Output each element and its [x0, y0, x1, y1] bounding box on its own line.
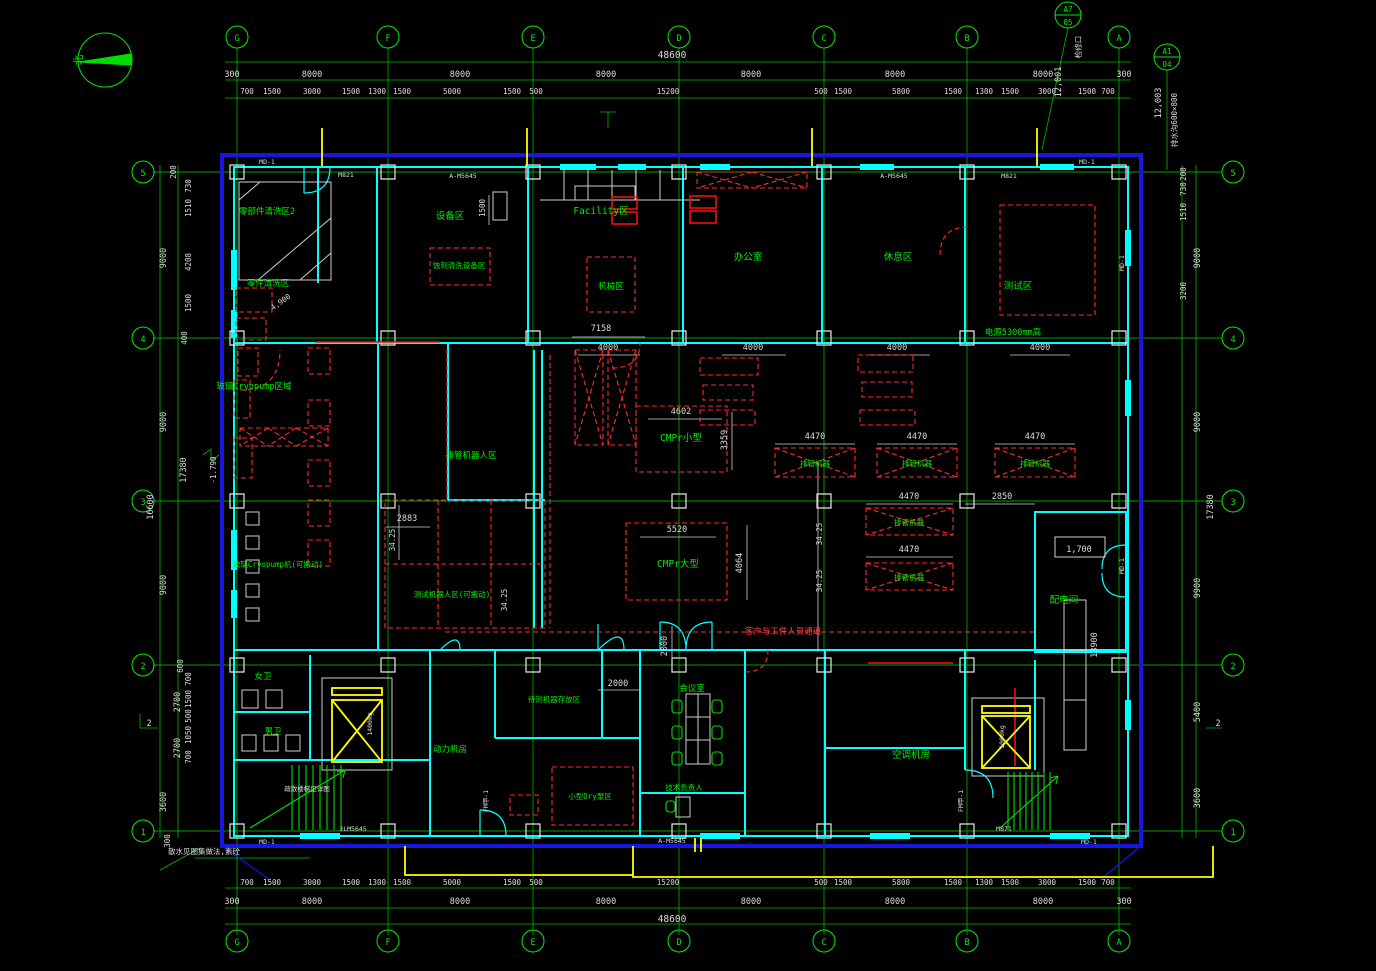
- splash-note: 散水见图集做法,素砼: [168, 846, 241, 856]
- elevator-cab-right: [982, 706, 1030, 768]
- dim-right-sub: 3200: [1179, 281, 1188, 300]
- door-tag: MD-1: [1081, 838, 1097, 846]
- dim-sub: 1500: [944, 87, 963, 96]
- elevator-capacity-tag: 1000kg: [998, 725, 1006, 749]
- dim-sub: 5000: [443, 87, 462, 96]
- dim-edge: 300: [224, 897, 239, 907]
- dim-sub: 700: [240, 878, 254, 887]
- dim-bay: 8000: [741, 70, 761, 80]
- fire-door-tag: FM甲-1: [957, 790, 965, 812]
- zone-label-dry-pump: 小型Dry泵区: [568, 792, 612, 801]
- dim-4000: 4000: [887, 343, 907, 353]
- door-tag: M871: [996, 825, 1012, 833]
- dim-sub: 1500: [834, 878, 853, 887]
- dim-bay: 8000: [596, 70, 616, 80]
- grid-col-label: E: [530, 34, 535, 44]
- dim-sub: 1300: [975, 87, 994, 96]
- dim-left: 2700: [173, 692, 183, 712]
- dim-sub: 3000: [1038, 878, 1057, 887]
- grid-col-label: B: [964, 34, 969, 44]
- dim-4000: 4000: [743, 343, 763, 353]
- grid-row-label: 2: [1230, 662, 1235, 672]
- drawing: G F E D C B A G F E D C B A 5 4 3 2 1 5 …: [0, 0, 1376, 971]
- stairs-right: [1000, 772, 1058, 830]
- door-tag: A-M5645: [880, 172, 907, 180]
- dim-sub: 1500: [1001, 878, 1020, 887]
- room-label-equip: 设备区: [436, 210, 465, 222]
- grid-row-label: 5: [1230, 169, 1235, 179]
- dim-sub: 1500: [342, 878, 361, 887]
- grid-col-label: A: [1116, 938, 1121, 948]
- dim-sub: 5800: [892, 87, 911, 96]
- dim-4470: 4470: [1025, 432, 1045, 442]
- grid-row-label: 2: [140, 662, 145, 672]
- dim-sub: 1300: [368, 878, 387, 887]
- room-label-parts-wash2: 零部件清洗区2: [239, 206, 295, 217]
- door-tag: MD-1: [1118, 558, 1126, 574]
- room-label-staging: 待测机器存放区: [528, 694, 581, 704]
- dim-sub: 1500: [503, 87, 522, 96]
- room-label-etch: 蚀刻清洗设备区: [433, 260, 486, 270]
- room-label-mech: 机械区: [598, 281, 624, 292]
- grid-col-label: G: [234, 938, 239, 948]
- dim-bay: 8000: [741, 897, 761, 907]
- dim-sub: 1500: [1001, 87, 1020, 96]
- section-mark: 2: [1215, 719, 1220, 729]
- dim-7158: 7158: [591, 324, 611, 334]
- dim-left: 2700: [173, 738, 183, 758]
- corridor-label: 客户与工件人员通道: [745, 626, 822, 637]
- dim-sub: 500: [814, 87, 828, 96]
- dim-left-sub: 700: [184, 672, 193, 686]
- dim-2000: 2000: [660, 636, 670, 656]
- dim-left-sub: 700: [184, 750, 193, 764]
- dim-total: 48600: [658, 914, 687, 925]
- detail-bubble-label: A7: [1063, 5, 1072, 14]
- dim-sub: 1500: [393, 878, 412, 887]
- detail-bubble-label: 05: [1063, 18, 1072, 27]
- dim-4470: 4470: [805, 432, 825, 442]
- dim-sub: 1300: [975, 878, 994, 887]
- equip-label-cmpr-large: CMPr大型: [657, 558, 699, 570]
- room-label-hvac: 空调机房: [892, 749, 930, 761]
- dim-left-sub: 200: [169, 165, 178, 179]
- dim-total: 48600: [658, 50, 687, 61]
- equip-label-pipe-robot: 排管机器: [894, 517, 924, 527]
- dim-sub: 5800: [892, 878, 911, 887]
- dim-sub: 1500: [834, 87, 853, 96]
- grid-row-label: 5: [140, 169, 145, 179]
- dim-sub: 500: [529, 878, 543, 887]
- grid-col-label: E: [530, 938, 535, 948]
- grid-row-label: 4: [1230, 335, 1235, 345]
- door-tag: MD-1: [259, 838, 275, 846]
- zone-label-cryo-mobile: 玻璃Cryopump机(可搬动): [233, 559, 323, 569]
- dim-sub: 1500: [1078, 878, 1097, 887]
- dim-left-sub: 4208: [184, 252, 193, 271]
- room-label-tech-lead: 技术负责人: [665, 782, 703, 792]
- room-label-test: 测试区: [1004, 280, 1033, 292]
- dim-sub: 500: [814, 878, 828, 887]
- dim-3425: 34.25: [815, 570, 824, 593]
- grid-col-label: B: [964, 938, 969, 948]
- stair-note: 疏散楼梯见详图: [284, 784, 330, 793]
- section-mark: 2: [146, 719, 151, 729]
- room-label-power-mech: 动力机房: [433, 744, 467, 755]
- dim-3425: 34.25: [388, 529, 397, 552]
- room-label-rest: 休息区: [884, 251, 913, 263]
- room-label-test-power: 电源5300mm高: [985, 327, 1041, 338]
- stairs-left: [250, 765, 345, 830]
- dim-4470: 4470: [899, 492, 919, 502]
- grid-col-label: A: [1116, 34, 1121, 44]
- door-tag: M821: [338, 171, 354, 179]
- dim-1700: 1,700: [1066, 545, 1092, 555]
- dim-1500: 1500: [478, 198, 487, 217]
- grid-col-label: C: [821, 34, 826, 44]
- dim-sub: 1500: [342, 87, 361, 96]
- dim-sub: 500: [529, 87, 543, 96]
- dim-sub: 1500: [503, 878, 522, 887]
- level-note: -1.790: [209, 456, 218, 484]
- dim-sub: 1300: [368, 87, 387, 96]
- dim-bay: 8000: [450, 70, 470, 80]
- dim-bay: 8000: [596, 897, 616, 907]
- elevation-12003: 12,003: [1154, 88, 1164, 119]
- door-tag: A-M5645: [658, 837, 685, 845]
- room-label-meeting: 会议室: [679, 683, 705, 694]
- dim-sub: 700: [240, 87, 254, 96]
- door-tag: M821: [1001, 172, 1017, 180]
- grid-col-label: D: [676, 938, 681, 948]
- dim-bay: 8000: [1033, 897, 1053, 907]
- dim-right: 9000: [1193, 412, 1203, 432]
- outer-wall: [222, 155, 1141, 880]
- door-tag: JLM5645: [339, 825, 366, 833]
- dim-3425: 34.25: [500, 589, 509, 612]
- detail-bubble-label: 04: [1162, 60, 1172, 69]
- equip-label-cmpr-small: CMPr小型: [660, 433, 702, 444]
- zone-label-test-robot: 测试机器人区(可搬动): [414, 589, 491, 599]
- grid-row-label: 3: [1230, 498, 1235, 508]
- dim-left-sub: 1510: [184, 198, 193, 217]
- dim-sub: 1500: [1078, 87, 1097, 96]
- dim-right: 9000: [1193, 248, 1203, 268]
- dim-2850: 2850: [992, 492, 1012, 502]
- door-tag: MD-1: [259, 158, 275, 166]
- cad-floor-plan: G F E D C B A G F E D C B A 5 4 3 2 1 5 …: [0, 0, 1376, 971]
- dim-13900: 13900: [1090, 632, 1100, 658]
- dim-left-sub: 1050: [184, 725, 193, 744]
- dim-sub: 5000: [443, 878, 462, 887]
- dim-right-total: 17380: [1206, 494, 1216, 520]
- dim-4064: 4064: [735, 553, 745, 573]
- grid-row-label: 3: [140, 498, 145, 508]
- dim-edge: 300: [224, 70, 239, 80]
- equip-label-pipe-robot: 排管机器: [902, 458, 932, 468]
- dim-4470: 4470: [907, 432, 927, 442]
- dim-left-total: 16600: [146, 494, 156, 520]
- dim-sub: 15200: [657, 878, 680, 887]
- dim-sub: 3000: [303, 87, 322, 96]
- elevator-capacity-tag: 1400kg: [366, 712, 374, 736]
- yellow-elements: [322, 128, 1213, 877]
- dim-left-total: 17380: [179, 457, 189, 483]
- dim-right-sub: 730: [1179, 182, 1188, 196]
- dim-right-sub: 1510: [1179, 202, 1188, 221]
- equip-label-pipe-robot: 排管机器: [800, 458, 830, 468]
- dim-sub: 3000: [303, 878, 322, 887]
- grid-col-label: G: [234, 34, 239, 44]
- grid-col-label: F: [385, 34, 390, 44]
- dim-left-sub: 500: [184, 709, 193, 723]
- dim-2883: 2883: [397, 514, 417, 524]
- dim-4602: 4602: [671, 407, 691, 417]
- north-label: 北: [73, 54, 85, 65]
- detail-bubble-label: A1: [1162, 47, 1171, 56]
- inner-dim-lines: [386, 195, 1075, 690]
- dim-sub: 700: [1101, 87, 1115, 96]
- access-note: 检修口: [1073, 36, 1083, 59]
- dim-sub: 1500: [263, 878, 282, 887]
- dim-2000: 2000: [608, 679, 628, 689]
- dim-5520: 5520: [667, 525, 687, 535]
- dim-bay: 8000: [302, 70, 322, 80]
- dim-left-sub: 1500: [184, 689, 193, 708]
- equip-label-pipe-robot: 排管机器: [894, 572, 924, 582]
- dim-bay: 8000: [302, 897, 322, 907]
- room-label-power: 配电间: [1050, 594, 1079, 606]
- room-label-toilet-m: 男卫: [264, 727, 282, 737]
- dim-left-bay: 9000: [159, 248, 169, 268]
- room-label-toilet-w: 女卫: [254, 671, 272, 682]
- dim-4000: 4000: [598, 343, 618, 353]
- dim-sub: 3000: [1038, 87, 1057, 96]
- grid-col-label: F: [385, 938, 390, 948]
- dim-left: 300: [163, 834, 172, 848]
- room-label-parts-wash: 零件清洗区: [247, 278, 290, 289]
- dim-sub: 1500: [944, 878, 963, 887]
- door-tag: MD-1: [1118, 255, 1126, 271]
- dim-bay: 8000: [885, 70, 905, 80]
- grid-row-label: 1: [140, 828, 145, 838]
- dim-edge: 300: [1116, 70, 1131, 80]
- elevator-cab-left: [332, 688, 382, 762]
- door-tag: MD-1: [1079, 158, 1095, 166]
- dim-bay: 8000: [1033, 70, 1053, 80]
- dim-left: 3600: [159, 792, 169, 812]
- dim-left-sub: 1500: [184, 293, 193, 312]
- dim-edge: 300: [1116, 897, 1131, 907]
- room-label-office: 办公室: [734, 251, 763, 263]
- red-solid: [315, 196, 1015, 766]
- equip-label-pipe-robot: 排管机器: [1020, 458, 1050, 468]
- dim-right: 3600: [1193, 788, 1203, 808]
- grid-row-label: 4: [140, 335, 145, 345]
- grid-col-label: C: [821, 938, 826, 948]
- door-tag: A-M5645: [449, 172, 476, 180]
- drain-note: 排水沟600×800: [1169, 92, 1179, 147]
- dim-left-sub: 730: [184, 179, 193, 193]
- zone-label-cryo: 玻璃Cryopump区域: [217, 381, 292, 392]
- dim-sub: 15200: [657, 87, 680, 96]
- dim-bay: 8000: [885, 897, 905, 907]
- dim-left-bay: 9000: [159, 412, 169, 432]
- dim-left-sub: 600: [176, 659, 185, 673]
- fire-door-tag: FM甲-1: [482, 790, 490, 812]
- room-label-facility: Facility区: [573, 206, 629, 217]
- dim-3359: 3359: [720, 430, 730, 450]
- dim-4470: 4470: [899, 545, 919, 555]
- dim-left-sub: 400: [180, 331, 189, 345]
- dim-left-bay: 9000: [159, 575, 169, 595]
- dim-right: 9900: [1193, 578, 1203, 598]
- compass: [78, 33, 132, 87]
- grid-row-label: 1: [1230, 828, 1235, 838]
- dim-bay: 8000: [450, 897, 470, 907]
- zone-label-pipe-robot: 排管机器人区: [445, 450, 497, 461]
- dim-3425: 34.25: [815, 523, 824, 546]
- grid-col-label: D: [676, 34, 681, 44]
- dim-sub: 700: [1101, 878, 1115, 887]
- dim-sub: 1500: [263, 87, 282, 96]
- dim-4000: 4000: [1030, 343, 1050, 353]
- dim-right-sub: 200: [1179, 167, 1188, 181]
- dim-right: 5400: [1193, 702, 1203, 722]
- dim-sub: 1500: [393, 87, 412, 96]
